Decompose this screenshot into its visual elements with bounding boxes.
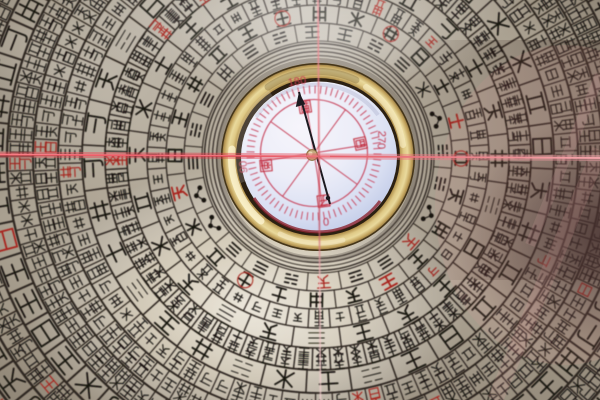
svg-text:270: 270: [375, 131, 388, 150]
svg-text:0: 0: [322, 215, 329, 227]
